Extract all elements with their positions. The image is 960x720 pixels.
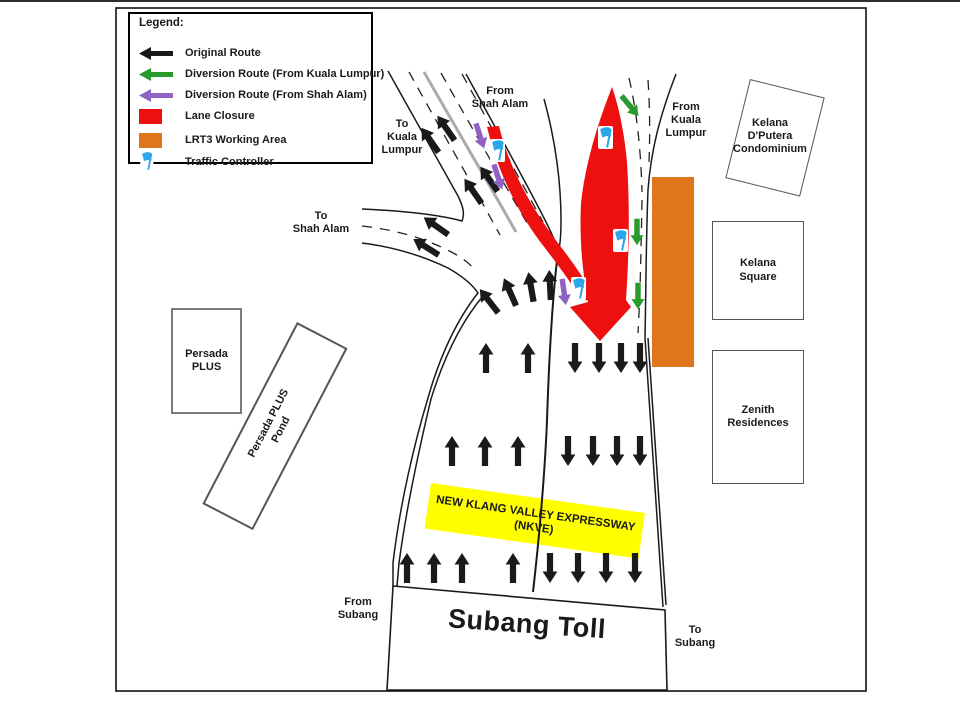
diversion-sa-arrow: [470, 121, 491, 150]
lrt3-working-area: [652, 177, 694, 367]
traffic-controller-flag-icon: [139, 151, 185, 173]
building-zenith-residences: Zenith Residences: [712, 350, 804, 484]
original-route-arrow: [511, 436, 526, 466]
original-route-arrow: [543, 553, 558, 583]
original-route-arrow: [561, 436, 576, 466]
road-edge-main-left-inner: [397, 296, 483, 586]
original-route-arrow: [427, 553, 442, 583]
label-to-shah-alam: To Shah Alam: [293, 210, 349, 236]
traffic-controller-flag-icon: [490, 139, 505, 162]
original-route-arrow: [568, 343, 583, 373]
legend-item-traffic-controller: Traffic Controller: [139, 153, 274, 171]
building-label: Zenith Residences: [727, 404, 788, 430]
legend-item-original-route: Original Route: [139, 44, 261, 62]
lane-dash: [629, 78, 642, 192]
purple-arrow-icon: [139, 89, 185, 102]
lane-dash: [648, 80, 650, 162]
original-route-arrow: [614, 343, 629, 373]
original-route-arrow: [506, 553, 521, 583]
label-from-subang: From Subang: [338, 596, 378, 622]
traffic-controller-flag-icon: [613, 229, 628, 252]
building-label: Kelana Square: [739, 257, 776, 283]
legend-title: Legend:: [139, 17, 371, 29]
original-route-arrow: [599, 553, 614, 583]
original-route-arrow: [610, 436, 625, 466]
original-route-arrow: [586, 436, 601, 466]
legend-item-label: Diversion Route (From Shah Alam): [185, 89, 367, 101]
traffic-controller-flag-icon: [598, 126, 613, 149]
traffic-controller-flag-icon: [571, 277, 586, 300]
legend-item-label: Traffic Controller: [185, 156, 274, 168]
road-edge-main-left: [362, 243, 478, 586]
red-swatch-icon: [139, 109, 185, 124]
legend-item-label: LRT3 Working Area: [185, 134, 286, 146]
label-from-kuala-lumpur: From Kuala Lumpur: [666, 101, 707, 141]
diversion-sa-arrows: [470, 121, 573, 306]
legend-item-diversion-sa: Diversion Route (From Shah Alam): [139, 86, 367, 104]
original-route-arrow: [458, 174, 487, 207]
legend-item-diversion-kl: Diversion Route (From Kuala Lumpur): [139, 65, 384, 83]
original-route-arrow: [400, 553, 415, 583]
legend-item-label: Original Route: [185, 47, 261, 59]
black-arrow-icon: [139, 47, 185, 60]
label-to-subang: To Subang: [675, 624, 715, 650]
legend: Legend: Original Route Diversion Route (…: [128, 12, 373, 164]
lane-closures: [487, 87, 631, 341]
building-label-kelana-dputera: Kelana D'Putera Condominium: [720, 117, 820, 157]
label-from-shah-alam: From Shah Alam: [472, 85, 528, 111]
legend-item-lrt3-area: LRT3 Working Area: [139, 131, 286, 149]
original-route-arrow: [479, 343, 494, 373]
legend-item-label: Lane Closure: [185, 110, 255, 122]
road-edge-right-lower-inner: [648, 338, 666, 605]
lane-closure-column-arrow: [570, 87, 631, 341]
traffic-diversion-map: NEW KLANG VALLEY EXPRESSWAY (NKVE): [0, 0, 960, 720]
diversion-kl-arrow: [617, 92, 644, 121]
original-route-arrow: [497, 275, 523, 308]
original-route-arrow: [628, 553, 643, 583]
original-route-arrow: [445, 436, 460, 466]
original-route-arrow: [633, 436, 648, 466]
original-route-arrow: [521, 271, 541, 303]
original-route-arrow: [592, 343, 607, 373]
diversion-kl-arrow: [631, 283, 644, 309]
orange-swatch-icon: [139, 133, 185, 148]
road-edge-right-lower: [645, 338, 663, 607]
building-persada-plus: Persada PLUS: [171, 308, 242, 414]
building-kelana-square: Kelana Square: [712, 221, 804, 320]
original-route-arrow: [571, 553, 586, 583]
road-median: [533, 252, 558, 592]
building-label: Persada PLUS: [185, 348, 228, 374]
label-to-kuala-lumpur: To Kuala Lumpur: [382, 118, 423, 158]
legend-item-label: Diversion Route (From Kuala Lumpur): [185, 68, 384, 80]
green-arrow-icon: [139, 68, 185, 81]
original-route-arrow: [521, 343, 536, 373]
legend-item-lane-closure: Lane Closure: [139, 107, 255, 125]
diversion-sa-arrow: [556, 278, 573, 306]
original-route-arrow: [455, 553, 470, 583]
original-route-arrow: [478, 436, 493, 466]
original-route-arrow: [409, 233, 442, 261]
